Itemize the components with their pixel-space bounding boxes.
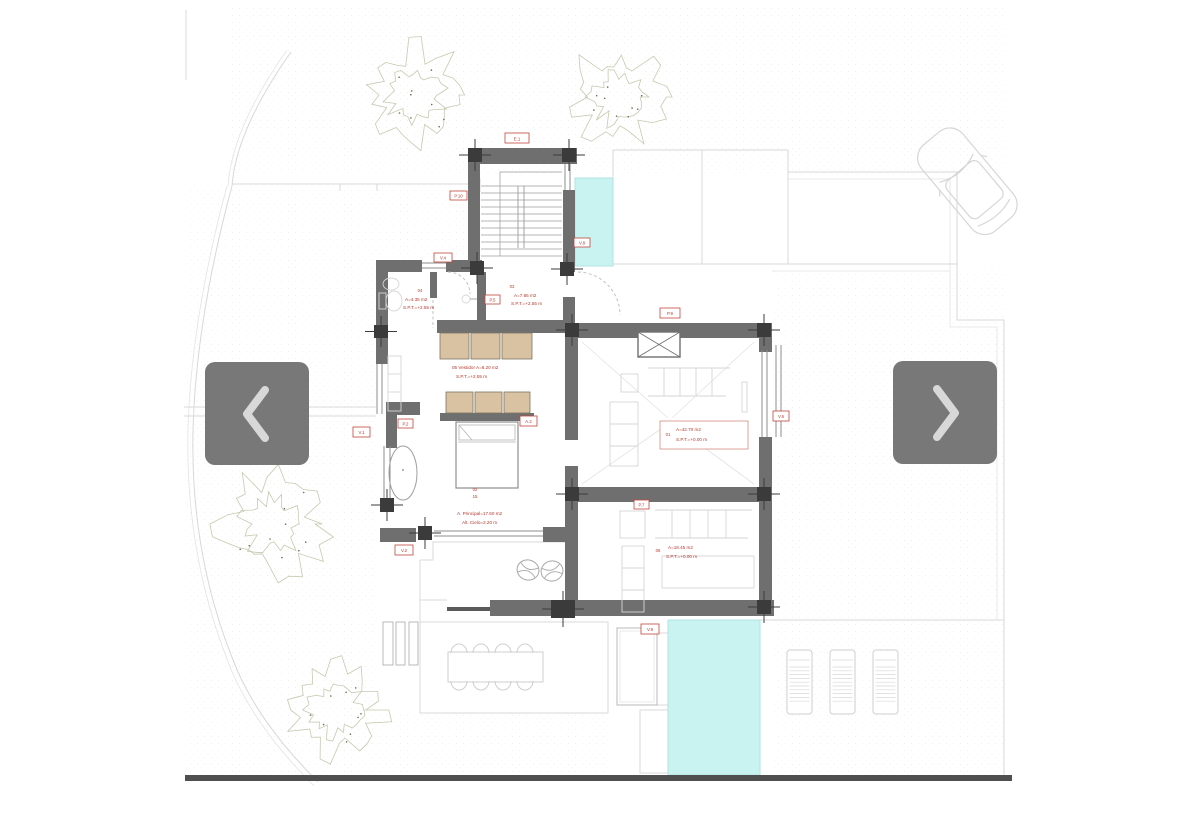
outdoor-counter	[617, 628, 657, 705]
planter	[409, 622, 418, 665]
carousel-next-button[interactable]	[893, 361, 997, 464]
tag-hall-door: P.5	[490, 298, 497, 303]
room-label-room2-tag: 06	[656, 548, 661, 553]
swimming-pool-lower	[668, 620, 760, 775]
floor-plan-drawing: E.1 P.10 V.4 P.5 V.8 P.9 A.2 V.1 P.2 V.2…	[0, 0, 1200, 824]
tag-stair-left: P.10	[454, 194, 463, 199]
planter	[383, 622, 393, 665]
room-label-bath-area: A=4.35 m2	[405, 297, 428, 302]
swimming-pool-upper	[575, 178, 613, 266]
room-label-bedroom-level: Alt. Cielo=2.20 m	[462, 520, 497, 525]
room-label-living-area: A=42.70 m2	[676, 427, 701, 432]
room-label-bedroom-tag2: 15	[473, 494, 478, 499]
tag-room2-door: P.7	[639, 503, 646, 508]
tag-corner-door: P.2	[403, 422, 410, 427]
tag-terrace-door: V.2	[401, 548, 408, 553]
tag-bedroom-window: V.1	[358, 430, 365, 435]
tag-pool2: V.9	[647, 627, 654, 632]
chevron-left-icon	[235, 384, 279, 444]
room-label-hall-tag: 03	[510, 284, 515, 289]
tag-hall-arc: P.9	[667, 311, 674, 316]
butterfly-chair	[539, 559, 565, 584]
dining-table	[448, 652, 543, 682]
chevron-right-icon	[923, 383, 967, 443]
butterfly-chair	[514, 557, 541, 583]
tag-wardrobe: A.2	[525, 419, 532, 424]
tag-pool-side: V.8	[579, 241, 586, 246]
room-label-hall-area: A=7.85 m2	[514, 293, 537, 298]
carousel-prev-button[interactable]	[205, 362, 309, 465]
sun-loungers	[787, 650, 898, 714]
tag-stair-top: E.1	[514, 137, 521, 142]
room-label-bath-tag: 04	[418, 288, 423, 293]
room-label-room2-level: S.P.T.=+0.00 m	[666, 554, 697, 559]
room-label-hall-level: S.P.T.=+2.55 m	[511, 301, 542, 306]
bathtub	[389, 446, 417, 500]
lounge-room-furniture	[620, 510, 754, 612]
room-label-living-level: S.P.T.=+0.00 m	[676, 437, 707, 442]
room-label-vestidor-level: S.P.T.=+2.55 m	[456, 374, 487, 379]
room-label-vestidor-area: 05 Vestidor A=6.20 m2	[452, 365, 499, 370]
staircase	[481, 172, 562, 256]
living-room-furniture	[582, 332, 754, 484]
site-bottom-wall	[185, 775, 1012, 781]
tag-bath-window: V.4	[440, 256, 447, 261]
room-label-room2-area: A=18.45 m2	[668, 545, 693, 550]
room-label-bedroom-area: A. Principal=17.50 m2	[457, 511, 503, 516]
room-label-living-tag: 01	[666, 432, 671, 437]
floor-plan-viewer: E.1 P.10 V.4 P.5 V.8 P.9 A.2 V.1 P.2 V.2…	[0, 0, 1200, 824]
tag-living-window: V.6	[778, 414, 785, 419]
planter	[396, 622, 405, 665]
room-label-bath-level: S.P.T.=+2.55 m	[403, 305, 434, 310]
room-label-bedroom-tag: 02	[473, 487, 478, 492]
